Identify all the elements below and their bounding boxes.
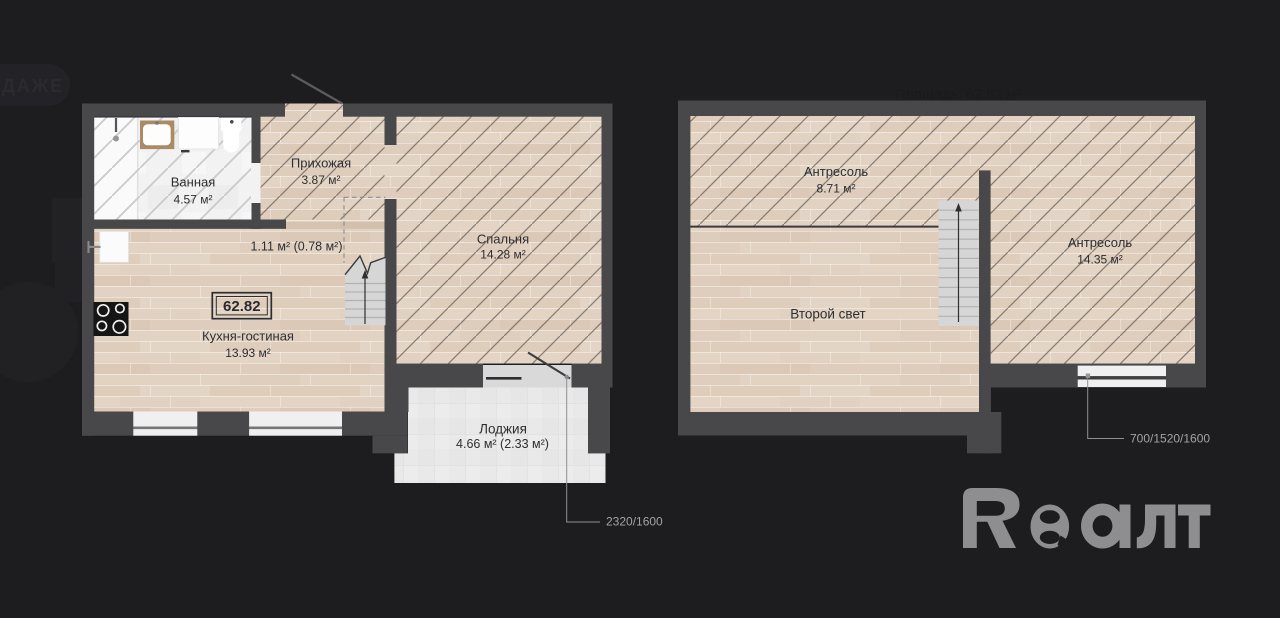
svg-text:14.28 м²: 14.28 м² [480, 248, 526, 262]
svg-text:13.93 м²: 13.93 м² [225, 346, 271, 360]
svg-text:1.11 м² (0.78 м²): 1.11 м² (0.78 м²) [251, 240, 343, 254]
svg-text:62.82: 62.82 [223, 298, 261, 315]
svg-text:Антресоль: Антресоль [1068, 235, 1132, 250]
svg-text:3.87 м²: 3.87 м² [302, 173, 341, 187]
svg-text:Лоджия: Лоджия [479, 422, 527, 437]
svg-text:2320/1600: 2320/1600 [606, 515, 663, 529]
svg-text:700/1520/1600: 700/1520/1600 [1130, 432, 1210, 446]
svg-text:ДАЖЕ: ДАЖЕ [2, 76, 64, 96]
svg-text:8.71 м²: 8.71 м² [817, 182, 856, 196]
svg-text:14.35 м²: 14.35 м² [1077, 253, 1123, 267]
svg-text:Спальня: Спальня [477, 232, 529, 247]
svg-text:Второй свет: Второй свет [790, 307, 865, 322]
svg-text:Кухня-гостиная: Кухня-гостиная [202, 329, 294, 344]
svg-text:Прихожая: Прихожая [291, 156, 351, 171]
svg-text:4.57 м²: 4.57 м² [174, 193, 213, 207]
svg-text:Антресоль: Антресоль [804, 164, 868, 179]
svg-text:Ванная: Ванная [171, 175, 216, 190]
svg-text:4.66 м² (2.33 м²): 4.66 м² (2.33 м²) [456, 437, 549, 451]
